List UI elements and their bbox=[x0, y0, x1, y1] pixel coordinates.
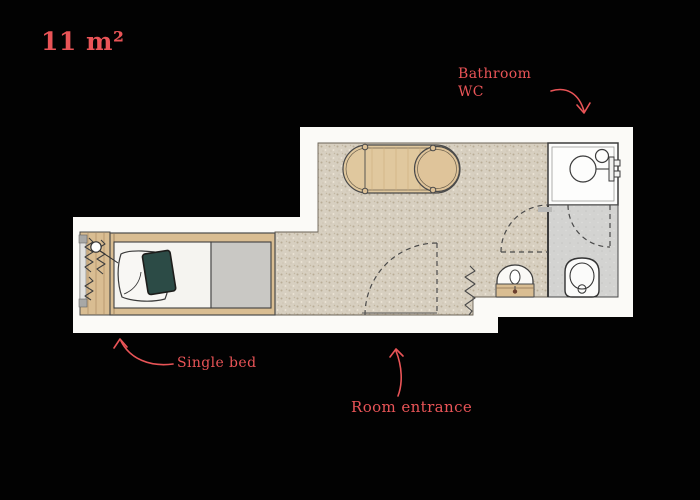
area-label: 11 m² bbox=[41, 26, 124, 57]
washbasin-icon bbox=[496, 265, 534, 297]
shower-basin-icon bbox=[570, 156, 596, 182]
shower-head-icon bbox=[596, 150, 609, 163]
room-entrance-label: Room entrance bbox=[351, 398, 472, 417]
single-bed-label: Single bed bbox=[177, 355, 256, 373]
bathroom-label-line1: Bathroom bbox=[458, 66, 531, 84]
oval-table bbox=[343, 144, 460, 194]
toilet-icon bbox=[565, 258, 599, 297]
bathroom-arrow bbox=[551, 90, 590, 113]
bed-lamp-icon bbox=[91, 242, 101, 252]
single-bed bbox=[91, 233, 275, 315]
bathroom-label-line2: WC bbox=[458, 84, 531, 102]
entrance-arrow bbox=[390, 349, 403, 396]
floorplan-drawing bbox=[0, 0, 700, 500]
single-bed-arrow bbox=[114, 339, 173, 365]
wall-mixer-icon bbox=[609, 157, 614, 181]
cushion bbox=[142, 250, 176, 295]
floorplan-canvas: 11 m² Bathroom WC Single bed Room entran… bbox=[0, 0, 700, 500]
bathroom-label: Bathroom WC bbox=[458, 66, 531, 101]
round-stool bbox=[415, 147, 460, 192]
blanket bbox=[211, 242, 271, 308]
door-jamb-mark bbox=[538, 207, 552, 212]
shower-area bbox=[548, 143, 620, 205]
